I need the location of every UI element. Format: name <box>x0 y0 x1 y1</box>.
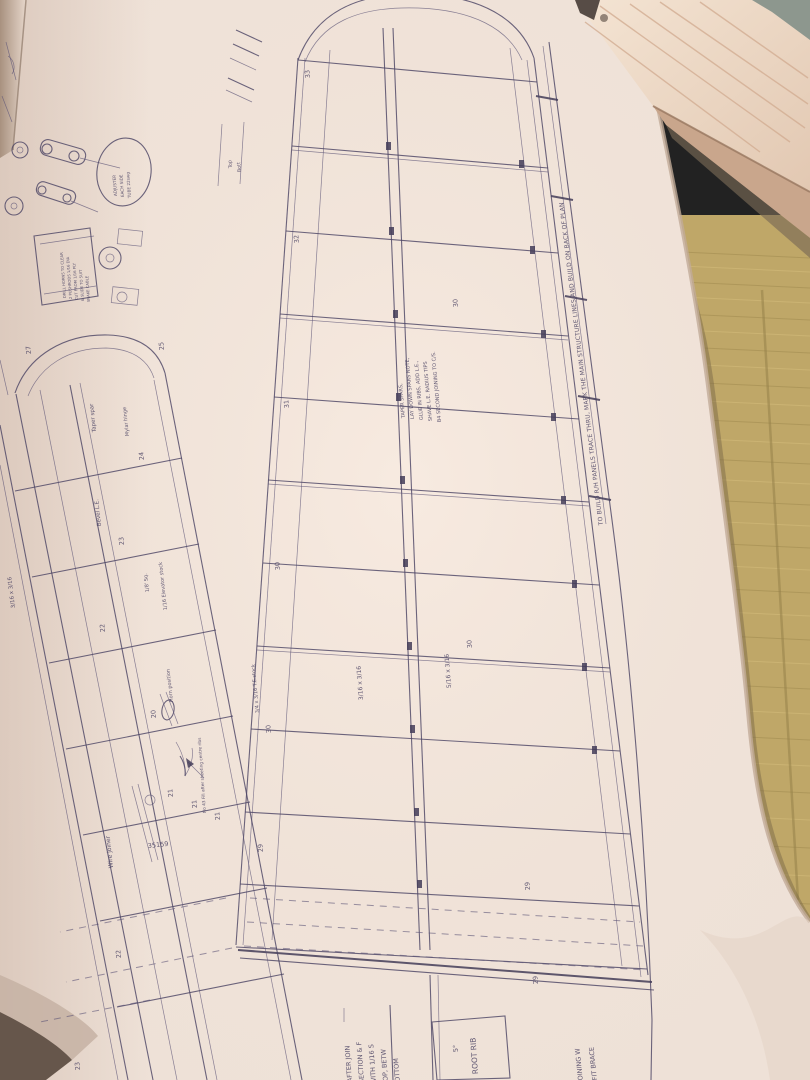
rib-number: 32 <box>292 235 301 244</box>
rib-number: 22 <box>114 950 123 959</box>
rib-number: 27 <box>24 346 33 355</box>
rib-number: 30 <box>273 562 282 571</box>
rib-number: 30 <box>264 725 273 734</box>
rib-number: 21 <box>166 789 175 798</box>
rib-number: 22 <box>98 624 107 633</box>
rib-number: 20 <box>149 710 158 719</box>
scene-canvas: ROOT RIB 5° <box>0 0 810 1080</box>
rib-number: 23 <box>73 1062 82 1071</box>
rib-number: 21 <box>190 800 199 809</box>
rib-number: 30 <box>465 640 474 649</box>
photo-of-plan-sheet: ROOT RIB 5° <box>0 0 810 1080</box>
rib-number: 33 <box>303 70 312 79</box>
rib-number: 21 <box>213 812 222 821</box>
rib-number: 29 <box>523 882 532 891</box>
beam-end-knot <box>600 14 608 22</box>
rib-number: 23 <box>117 537 126 546</box>
rib-number: 29 <box>256 844 265 853</box>
rib-number: 24 <box>137 452 146 461</box>
rib-number: 25 <box>157 342 166 351</box>
rib-number: 30 <box>451 299 460 308</box>
bracket-row-top: Top <box>227 160 234 170</box>
root-rib-angle: 5° <box>451 1044 459 1052</box>
rib-number: 31 <box>282 400 291 409</box>
bracket-row-bottom: Bott <box>236 162 243 173</box>
rib-number: 29 <box>531 976 540 985</box>
